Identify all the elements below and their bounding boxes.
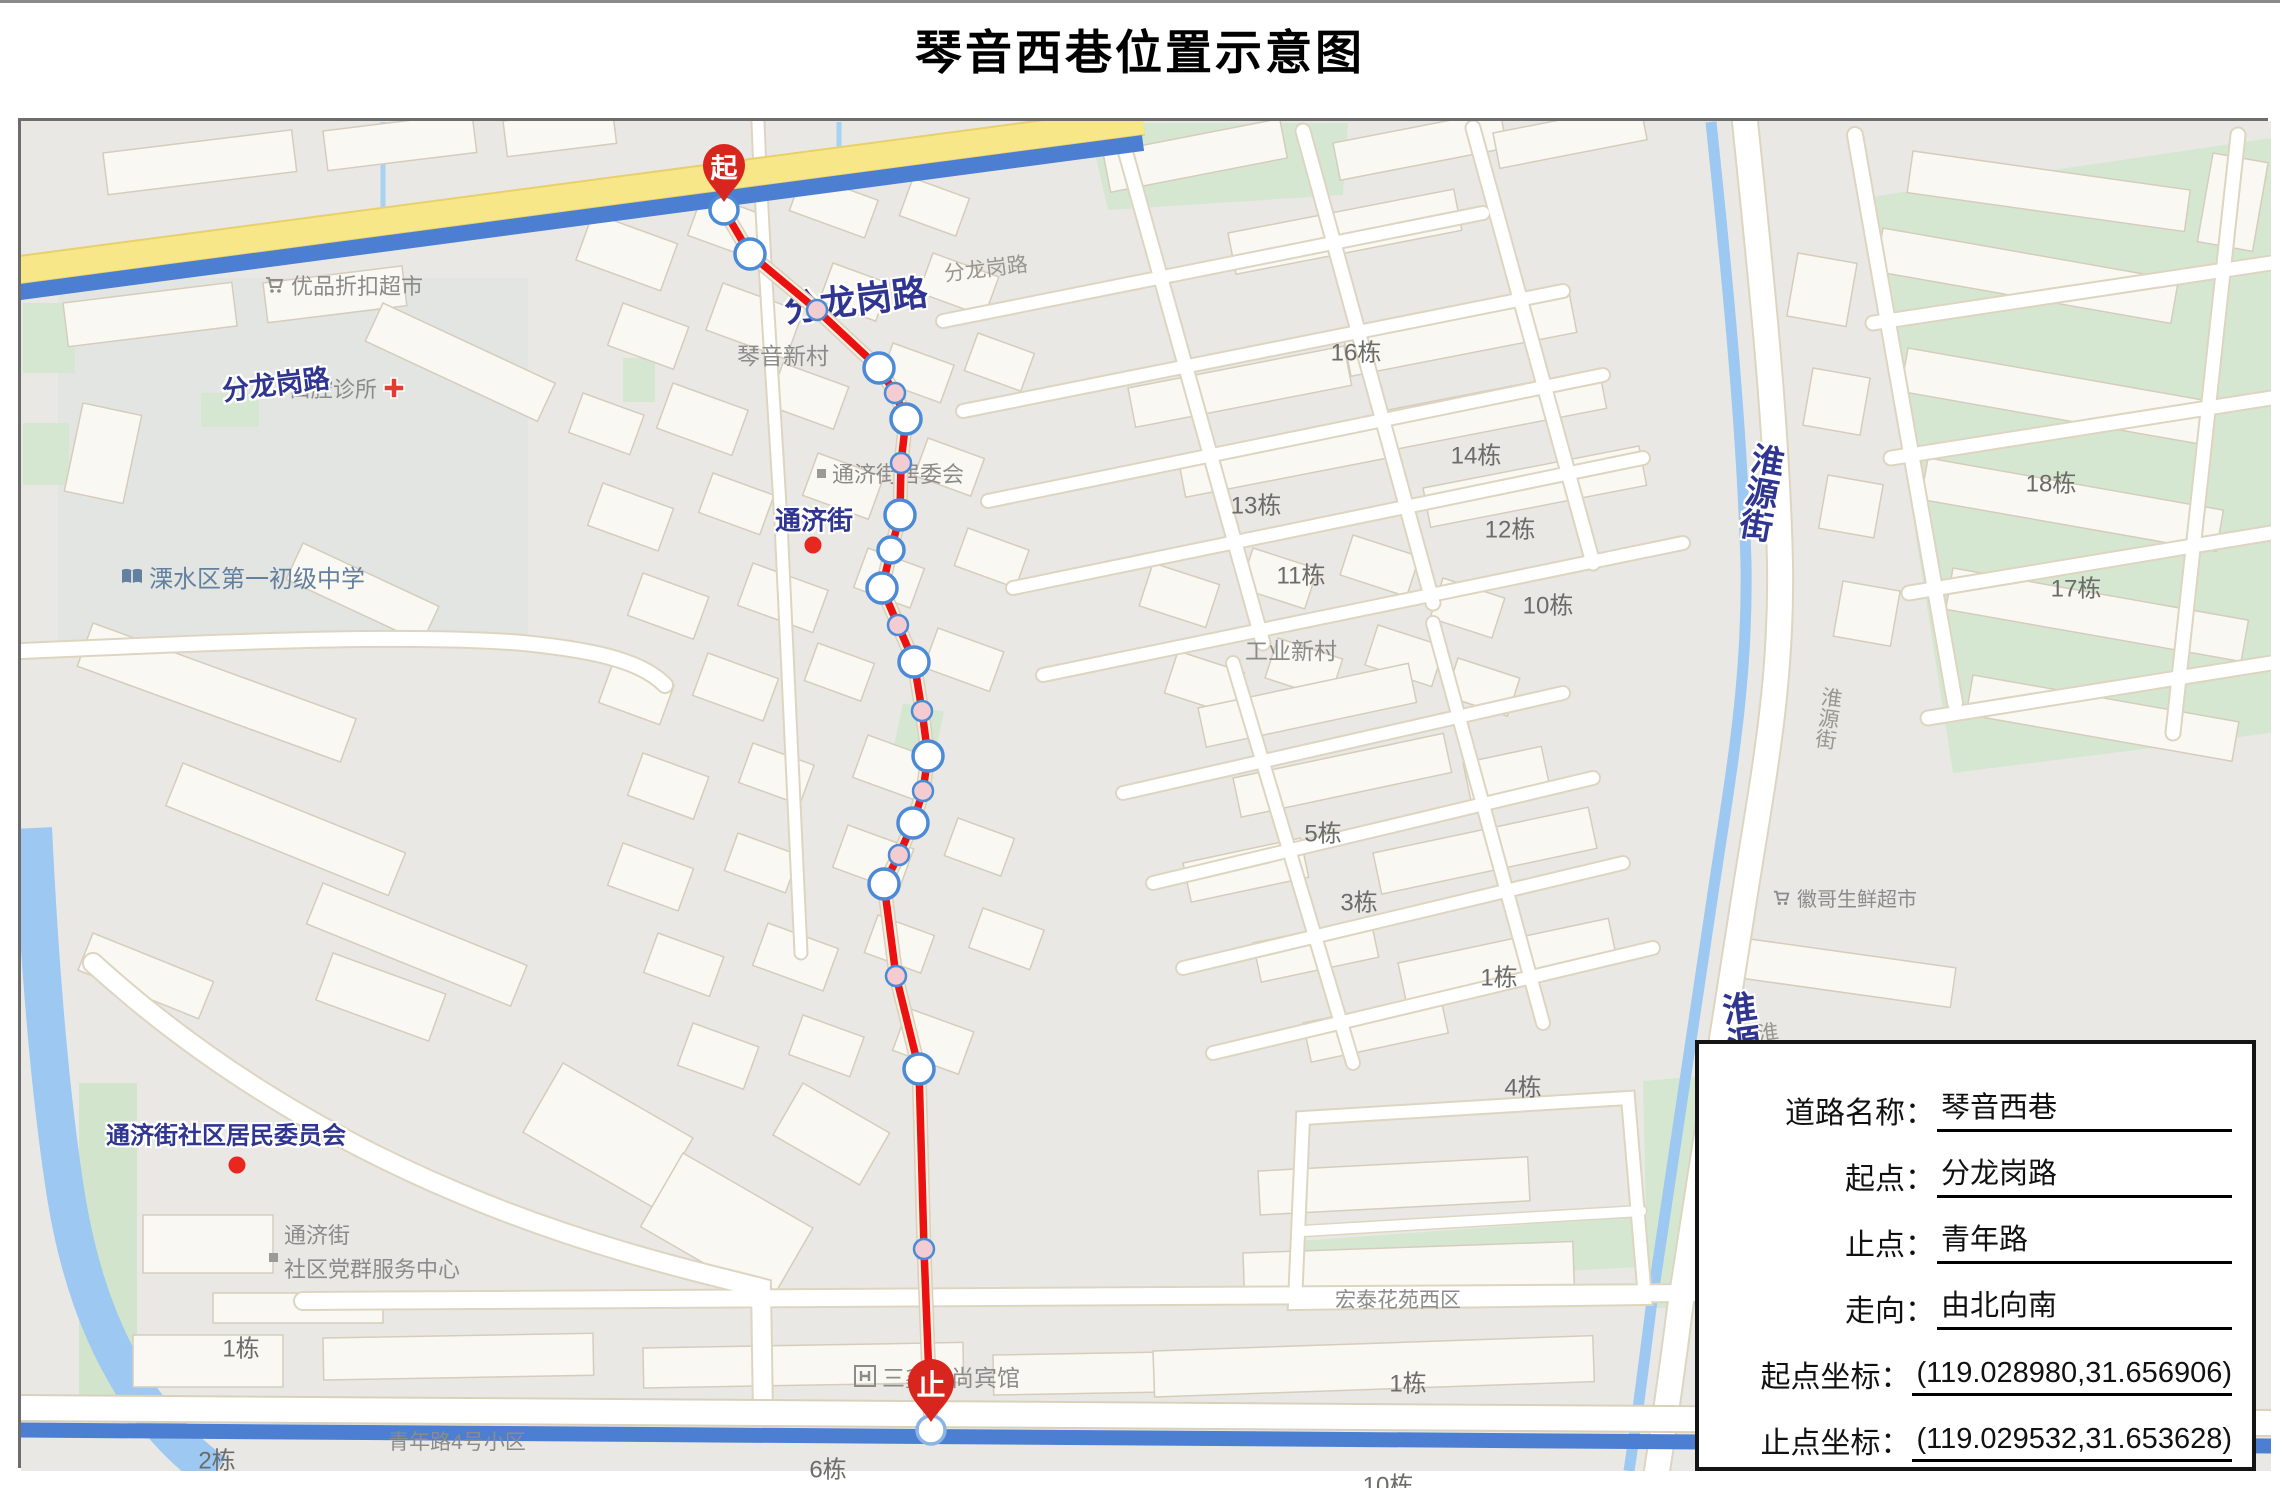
info-label: 道路名称 bbox=[1699, 1088, 1905, 1132]
info-label: 止点坐标 bbox=[1699, 1418, 1880, 1462]
info-row-start: 起点 ： 分龙岗路 bbox=[1699, 1132, 2252, 1198]
info-row-direction: 走向 ： 由北向南 bbox=[1699, 1264, 2252, 1330]
info-value: (119.028980,31.656906) bbox=[1912, 1357, 2232, 1396]
info-value: 青年路 bbox=[1937, 1216, 2232, 1264]
info-value: 分龙岗路 bbox=[1937, 1150, 2232, 1198]
info-row-end: 止点 ： 青年路 bbox=[1699, 1198, 2252, 1264]
info-label: 走向 bbox=[1699, 1286, 1905, 1330]
info-value: (119.029532,31.653628) bbox=[1912, 1423, 2232, 1462]
info-label: 起点坐标 bbox=[1699, 1352, 1880, 1396]
end-pin-label: 止 bbox=[916, 1362, 945, 1404]
building-label-10b: 10栋 bbox=[1363, 1473, 1414, 1488]
info-label: 止点 bbox=[1699, 1220, 1905, 1264]
info-row-road-name: 道路名称 ： 琴音西巷 bbox=[1699, 1066, 2252, 1132]
info-label: 起点 bbox=[1699, 1154, 1905, 1198]
map-canvas: 优品折扣超市 口腔诊所 分龙岗路 分龙岗路 分龙岗路 琴音新村 通济街居委会 通… bbox=[18, 118, 2268, 1468]
road-info-box: 道路名称 ： 琴音西巷 起点 ： 分龙岗路 止点 ： 青年路 走向 ： 由北向南… bbox=[1695, 1040, 2256, 1471]
info-row-end-coord: 止点坐标 ： (119.029532,31.653628) bbox=[1699, 1396, 2252, 1462]
info-value: 由北向南 bbox=[1937, 1282, 2232, 1330]
info-value: 琴音西巷 bbox=[1937, 1084, 2232, 1132]
info-row-start-coord: 起点坐标 ： (119.028980,31.656906) bbox=[1699, 1330, 2252, 1396]
window-top-edge bbox=[0, 0, 2280, 3]
start-pin-label: 起 bbox=[711, 147, 738, 186]
screenshot-root: 琴音西巷位置示意图 bbox=[0, 0, 2280, 1488]
page-title: 琴音西巷位置示意图 bbox=[0, 14, 2280, 83]
